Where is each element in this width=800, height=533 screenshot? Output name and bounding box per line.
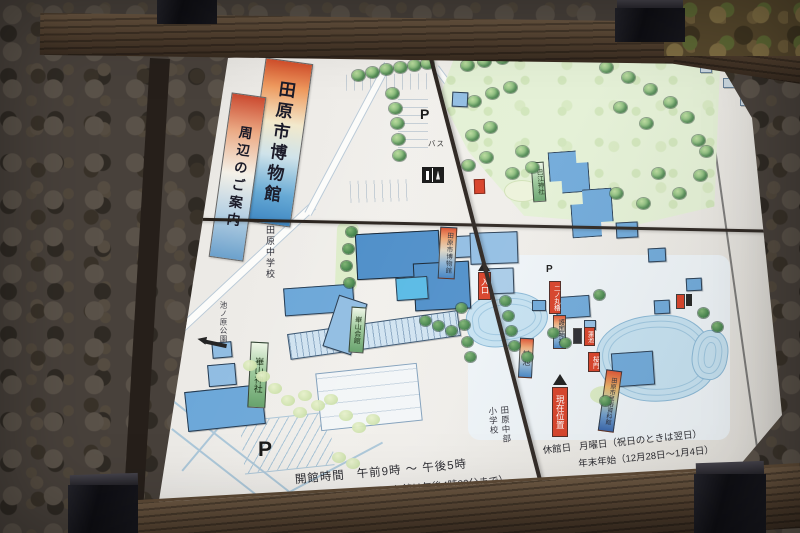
hours-label: 開館時間 [295, 470, 346, 486]
tree-icon [256, 371, 270, 382]
tree-icon [673, 188, 686, 199]
parking-icon: P [420, 106, 429, 122]
museum-map-label: 田原市博物館 [438, 227, 458, 280]
tree-icon [324, 394, 338, 405]
photo-scene: P P P バス 田原市博物館 入口 二ノ丸櫓 護国神社 袖池 蓮池 桜門 現在… [0, 0, 800, 533]
building-pool [395, 276, 429, 301]
building-small [686, 278, 703, 292]
tree-icon [366, 67, 379, 78]
tree-icon [344, 278, 355, 288]
tree-icon [692, 135, 705, 146]
current-location-label: 現在位置 [552, 387, 568, 437]
building-small [616, 221, 639, 238]
tree-icon [500, 296, 511, 306]
building-small [740, 96, 754, 106]
tree-icon [712, 322, 723, 332]
hasu-pond-label: 蓮池 [584, 327, 595, 346]
tree-icon [506, 326, 517, 336]
black-marker [686, 294, 692, 306]
tree-icon [610, 188, 623, 199]
tree-icon [594, 290, 605, 300]
tree-icon [522, 352, 533, 362]
red-marker [676, 294, 685, 309]
tree-icon [462, 160, 475, 171]
restroom-icon [422, 167, 444, 183]
tree-icon [652, 168, 665, 179]
tree-icon [380, 64, 393, 75]
tree-icon [504, 82, 517, 93]
tree-icon [637, 198, 650, 209]
tree-icon [311, 400, 325, 411]
current-location-triangle-icon [553, 374, 567, 385]
tree-icon [614, 102, 627, 113]
tree-icon [408, 60, 421, 71]
junior-high-label: 田原中学校 [264, 225, 277, 295]
tree-icon [560, 338, 571, 348]
tree-icon [486, 88, 499, 99]
tree-icon [700, 146, 713, 157]
tree-icon [466, 130, 479, 141]
tree-icon [503, 311, 514, 321]
tree-icon [352, 422, 366, 433]
tree-icon [465, 352, 476, 362]
wood-post-bottom-left [68, 485, 138, 533]
tree-icon [446, 326, 457, 336]
tree-icon [681, 112, 694, 123]
building-small [532, 300, 546, 311]
wood-post-top-right [615, 8, 685, 42]
parking-stripes [350, 179, 411, 203]
tree-icon [391, 118, 404, 129]
black-marker [573, 328, 582, 344]
tree-icon [346, 458, 360, 469]
building-small [654, 300, 671, 315]
tree-icon [516, 146, 529, 157]
building-shrine-hall [207, 363, 237, 387]
tree-icon [339, 410, 353, 421]
tree-icon [600, 62, 613, 73]
tree-icon [462, 337, 473, 347]
tree-icon [268, 383, 282, 394]
wood-post-bottom-right [694, 474, 766, 533]
tree-icon [644, 84, 657, 95]
tree-icon [298, 390, 312, 401]
tree-icon [461, 60, 474, 71]
tree-icon [394, 62, 407, 73]
tree-icon [332, 452, 346, 463]
parking-icon: P [258, 438, 272, 462]
closed-label: 休館日 [542, 443, 572, 457]
tree-icon [548, 328, 559, 338]
tree-icon [343, 244, 354, 254]
sakura-gate-label: 桜門 [588, 352, 600, 372]
ninomaru-turret-label: 二ノ丸櫓 [549, 281, 561, 314]
building-small [648, 248, 667, 263]
wood-edge-left [124, 58, 170, 502]
building-school-wing-hatched [287, 310, 461, 360]
tree-icon [352, 70, 365, 81]
tree-icon [506, 168, 519, 179]
parking-icon: P [546, 264, 553, 275]
tree-icon [433, 321, 444, 331]
ikenohara-park-label: 池ノ原公園 [218, 301, 229, 349]
tree-icon [392, 134, 405, 145]
bus-stop-label: バス [428, 138, 445, 149]
seam-horizontal [164, 217, 772, 232]
tree-icon [664, 97, 677, 108]
tree-icon [393, 150, 406, 161]
tree-icon [346, 227, 357, 237]
tree-icon [640, 118, 653, 129]
tree-icon [386, 88, 399, 99]
tree-icon [480, 152, 493, 163]
tree-icon [694, 170, 707, 181]
tree-icon [389, 103, 402, 114]
wood-post-top-left [157, 0, 217, 24]
tree-icon [600, 396, 611, 406]
tree-icon [341, 261, 352, 271]
elementary-school-label: 田原中部小学校 [486, 405, 513, 451]
tree-icon [622, 72, 635, 83]
tree-icon [281, 395, 295, 406]
map-board: P P P バス 田原市博物館 入口 二ノ丸櫓 護国神社 袖池 蓮池 桜門 現在… [0, 0, 800, 533]
tree-icon [509, 341, 520, 351]
building-small [723, 78, 739, 88]
tree-icon [293, 407, 307, 418]
kazan-hall-label: 崋山会館 [348, 307, 366, 354]
tree-icon [526, 162, 539, 173]
tree-icon [459, 320, 470, 330]
tree-icon [243, 360, 257, 371]
tree-icon [698, 308, 709, 318]
tree-icon [468, 96, 481, 107]
tree-icon [366, 414, 380, 425]
red-marker [474, 179, 486, 194]
building-small [452, 92, 469, 108]
tree-icon [484, 122, 497, 133]
tree-icon [420, 316, 431, 326]
tree-icon [456, 303, 467, 313]
